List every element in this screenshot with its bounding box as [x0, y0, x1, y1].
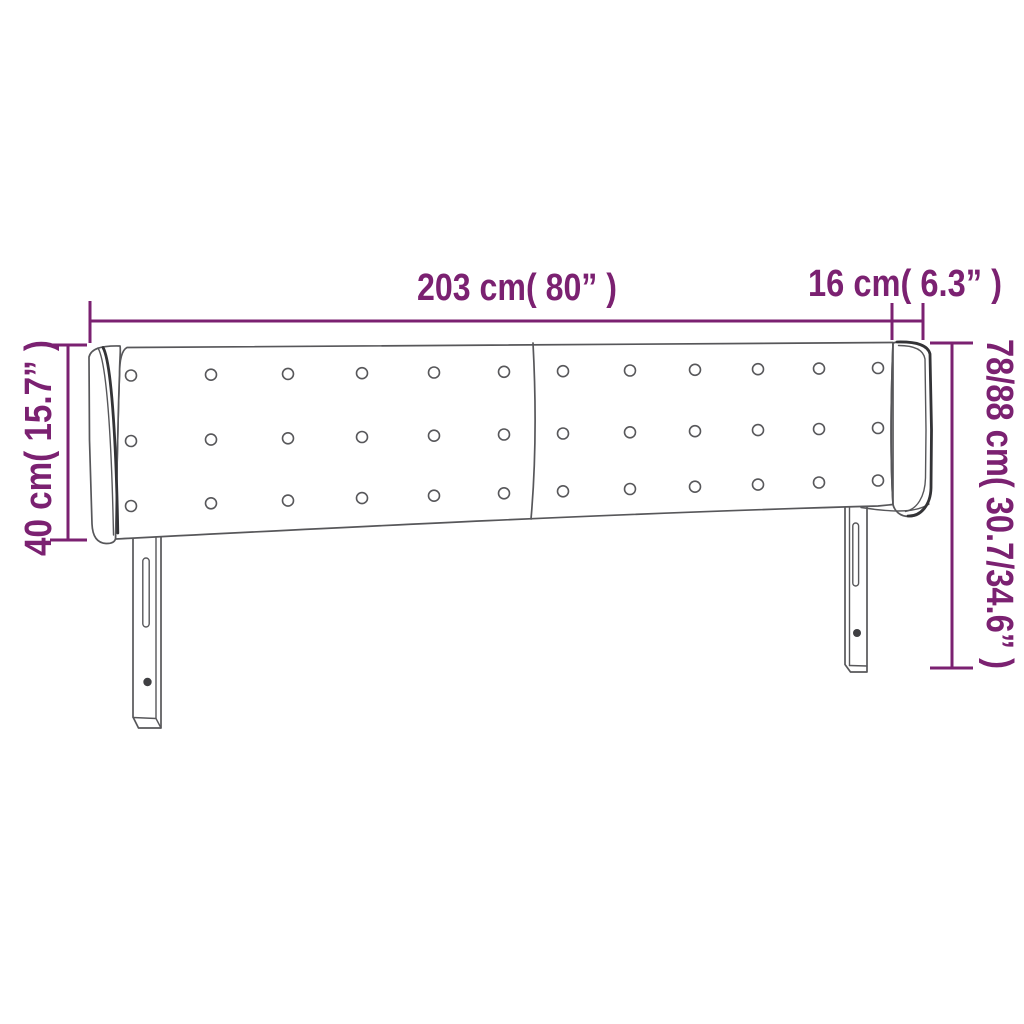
total-height-dimension-line: [930, 343, 973, 668]
tufting-button: [283, 433, 294, 444]
headboard-right-leg: [845, 501, 867, 672]
width-dimension-label: 203 cm( 80” ): [417, 267, 617, 309]
tufting-button: [625, 427, 636, 438]
tufting-button: [753, 479, 764, 490]
headboard-dimension-drawing: 203 cm( 80” ) 16 cm( 6.3” ) 40 cm( 15.7”…: [0, 0, 1024, 1024]
headboard-left-leg: [133, 531, 161, 728]
tufting-button: [499, 366, 510, 377]
tufting-button: [873, 423, 884, 434]
tufting-button: [625, 484, 636, 495]
tufting-button: [499, 488, 510, 499]
tufting-button: [873, 475, 884, 486]
headboard-left-wing: [89, 346, 120, 544]
side-width-dimension-label: 16 cm( 6.3” ): [808, 263, 1002, 305]
tufting-button: [126, 501, 137, 512]
tufting-button: [357, 493, 368, 504]
tufting-button: [690, 364, 701, 375]
tufting-button: [206, 434, 217, 445]
tufting-button: [126, 436, 137, 447]
tufting-button: [206, 369, 217, 380]
tufting-button: [558, 428, 569, 439]
side-height-dimension-label: 40 cm( 15.7” ): [18, 340, 60, 556]
tufting-button: [429, 430, 440, 441]
tufting-button: [206, 498, 217, 509]
tufting-button: [690, 481, 701, 492]
tufting-button: [690, 426, 701, 437]
tufting-button: [126, 370, 137, 381]
left-leg-screw-hole: [143, 678, 151, 686]
tufting-button: [873, 363, 884, 374]
right-leg-screw-hole: [853, 629, 861, 637]
right-leg-slot: [853, 523, 859, 586]
tufting-button: [429, 490, 440, 501]
tufting-button: [558, 486, 569, 497]
tufting-button: [357, 368, 368, 379]
right-leg-bottom: [850, 666, 868, 667]
tufting-button: [814, 477, 825, 488]
tufting-button: [429, 367, 440, 378]
left-leg-slot: [143, 558, 149, 627]
tufting-button: [357, 432, 368, 443]
tufting-button: [283, 368, 294, 379]
product-dimension-diagram: 203 cm( 80” ) 16 cm( 6.3” ) 40 cm( 15.7”…: [0, 0, 1024, 1024]
tufting-button: [753, 364, 764, 375]
headboard-drawing: [89, 342, 932, 728]
total-height-dimension-label: 78/88 cm( 30.7/34.6” ): [978, 339, 1020, 669]
tufting-button: [625, 365, 636, 376]
tufting-button: [558, 366, 569, 377]
tufting-button: [814, 363, 825, 374]
tufting-button: [499, 429, 510, 440]
tufting-button: [753, 425, 764, 436]
tufting-button: [283, 495, 294, 506]
tufting-button: [814, 424, 825, 435]
